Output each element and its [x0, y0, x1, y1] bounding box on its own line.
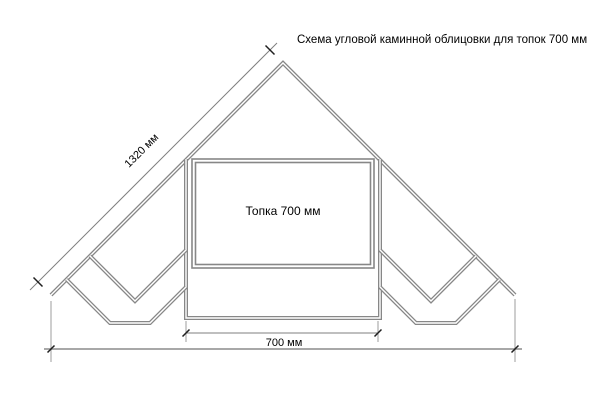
roof-diagonal-outline-core: [51, 63, 515, 295]
firebox-column-outline-core: [186, 159, 380, 318]
firebox-width-dimension: 700 мм: [183, 321, 382, 349]
firebox: Топка 700 мм: [192, 159, 374, 268]
roof-diagonal-outline: [51, 63, 515, 295]
fireplace-scheme-drawing: Топка 700 мм 1320 мм 700 мм Схема: [0, 0, 600, 400]
left-lower-shelf: [67, 280, 187, 324]
left-lower-shelf-core: [67, 280, 187, 324]
firebox-column-outline: [186, 159, 380, 318]
corner-cladding-outline: [51, 63, 515, 323]
diagonal-dimension-line: [30, 43, 277, 290]
fireplace-scheme-page: Топка 700 мм 1320 мм 700 мм Схема: [0, 0, 600, 400]
firebox-label: Топка 700 мм: [246, 204, 321, 218]
left-upper-shelf: [90, 250, 186, 301]
right-lower-shelf: [380, 280, 500, 324]
firebox-width-dimension-label: 700 мм: [266, 337, 303, 349]
diagonal-dimension: 1320 мм: [30, 43, 277, 290]
page-title: Схема угловой каминной облицовки для топ…: [297, 34, 587, 46]
right-upper-shelf: [380, 250, 476, 301]
right-lower-shelf-core: [380, 280, 500, 324]
right-upper-shelf-core: [380, 250, 476, 301]
left-upper-shelf-core: [90, 250, 186, 301]
overall-width-dimension: [44, 299, 522, 362]
